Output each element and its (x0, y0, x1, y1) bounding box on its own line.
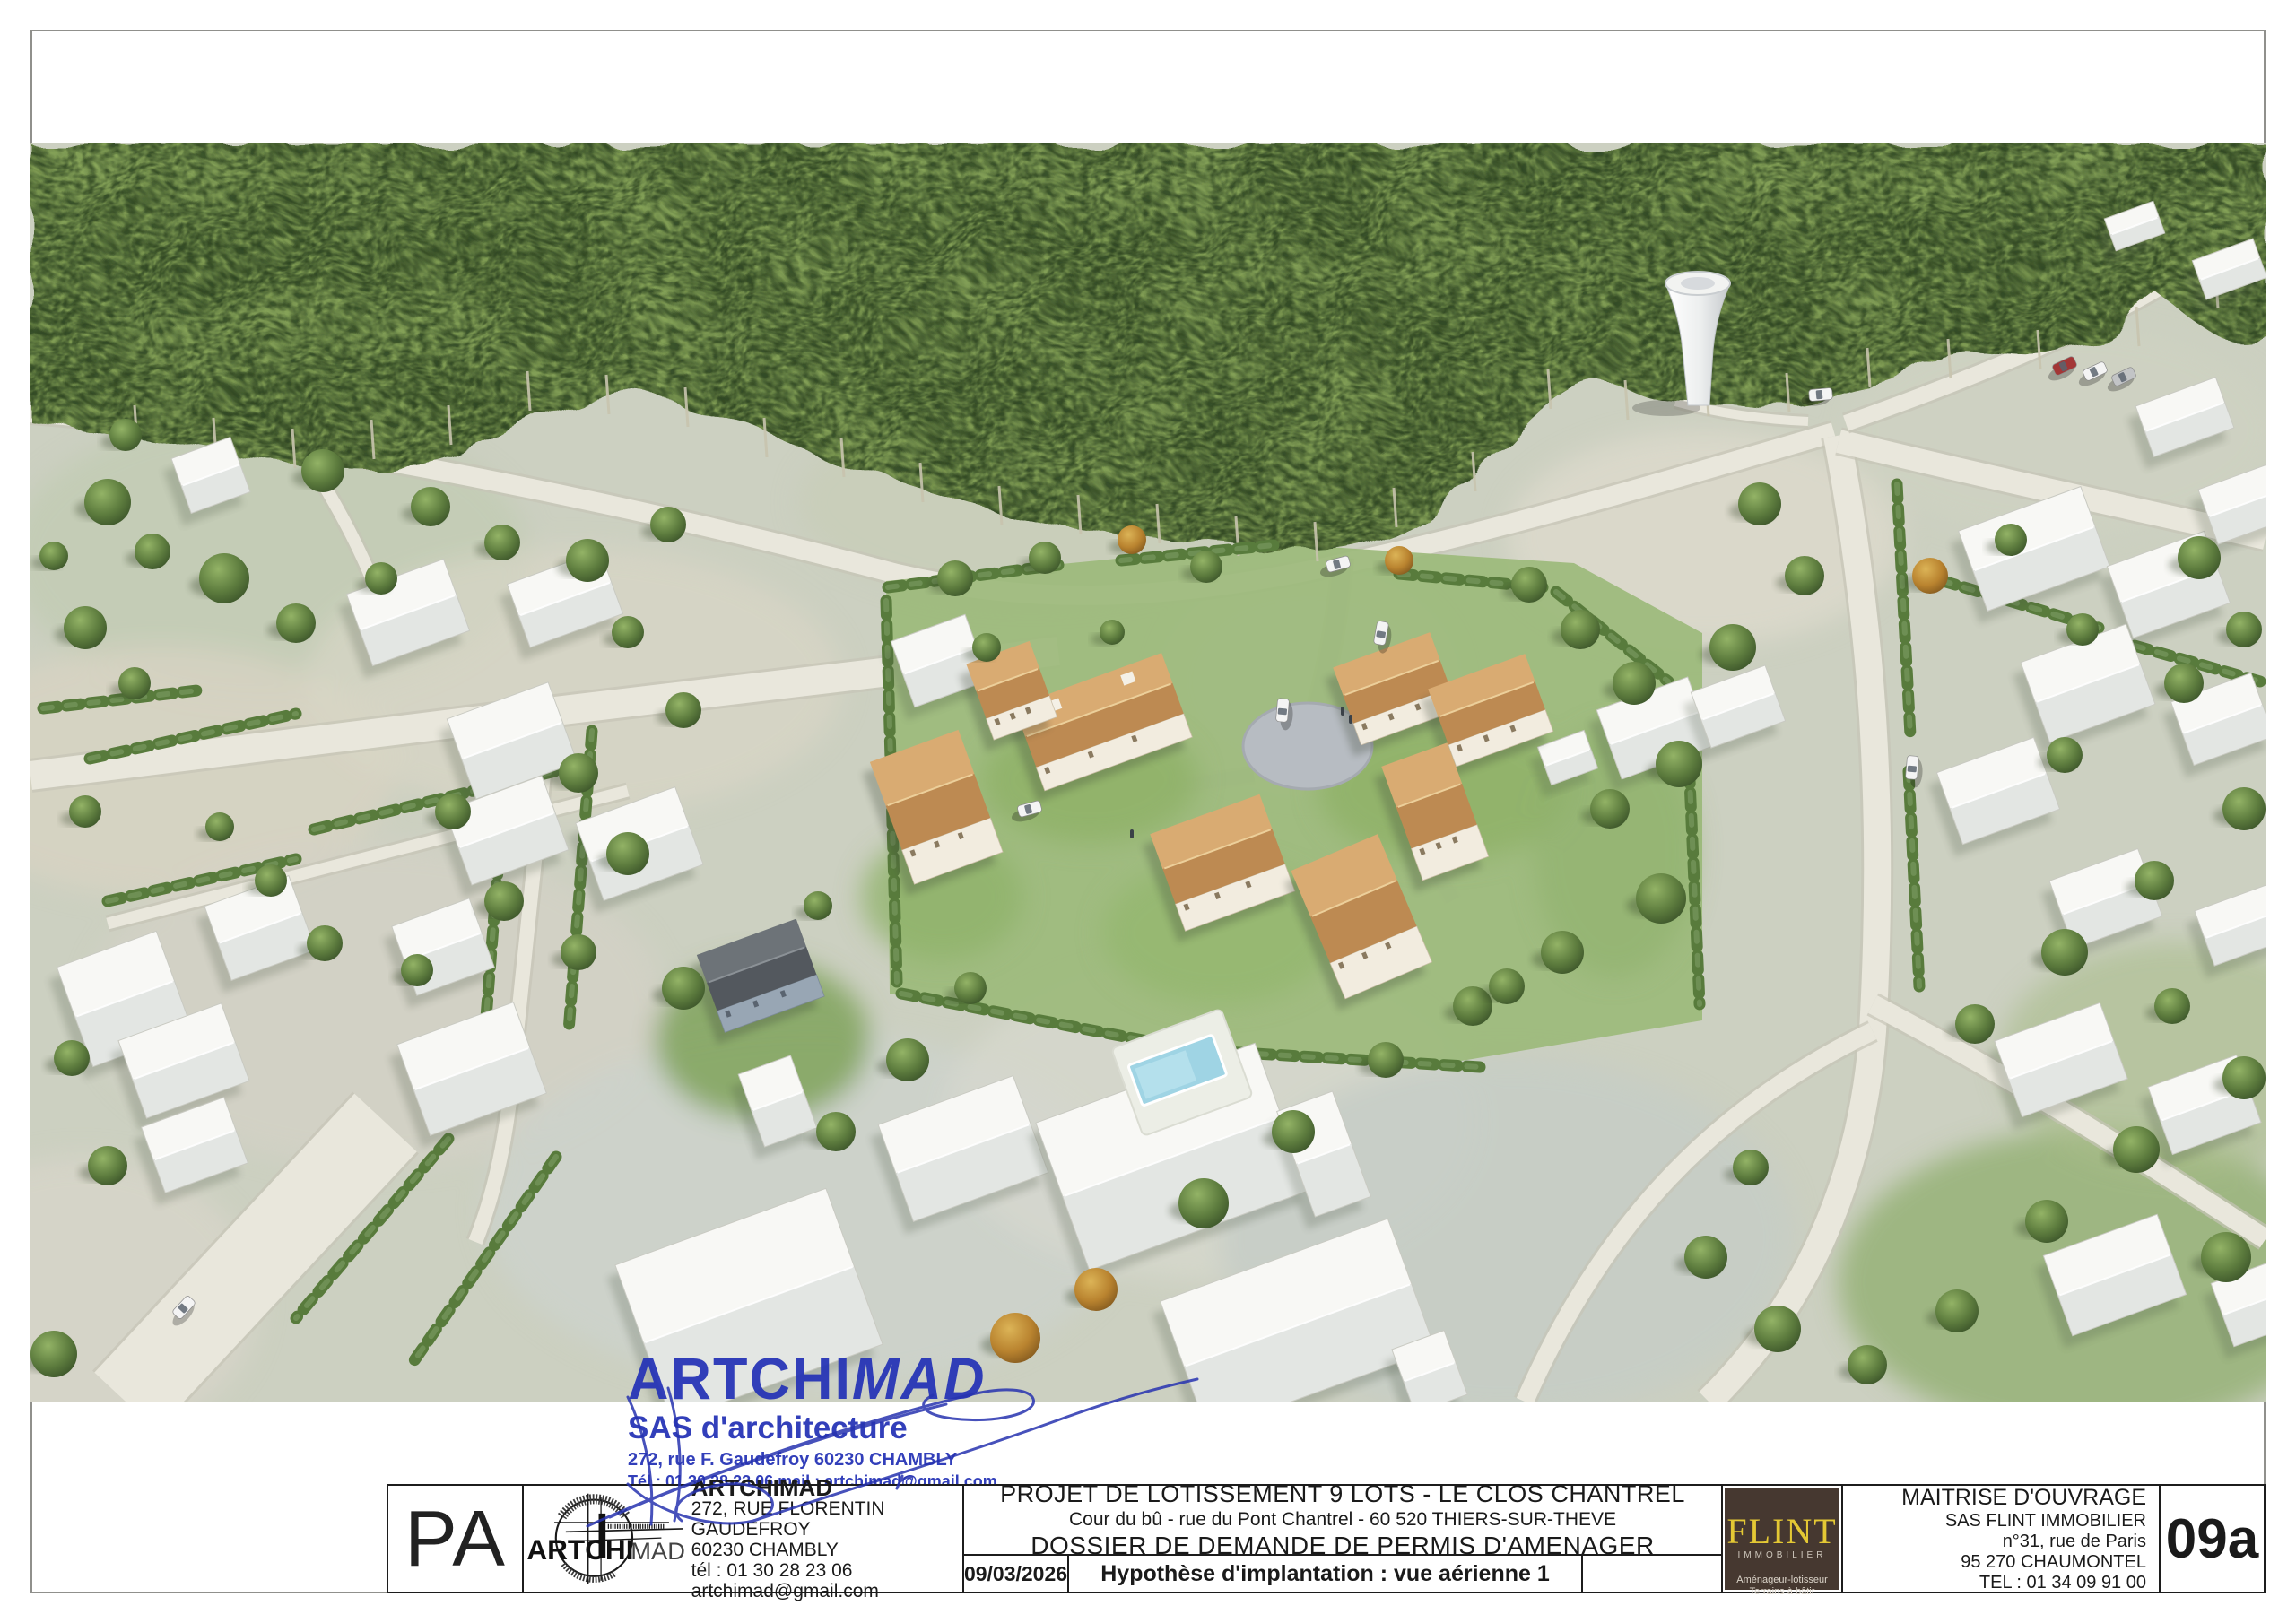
stamp-company-type: SAS d'architecture (628, 1412, 1130, 1445)
owner-phone: TEL : 01 34 09 91 00 (1979, 1573, 2146, 1593)
autumn-tree (1118, 525, 1146, 554)
flint-name: FLINT (1726, 1516, 1837, 1547)
tree (1511, 567, 1547, 603)
tree (1684, 1236, 1727, 1279)
autumn-tree (1074, 1268, 1118, 1311)
autumn-tree (1912, 558, 1948, 594)
project-address: Cour du bû - rue du Pont Chantrel - 60 5… (1069, 1509, 1616, 1531)
tree (1272, 1110, 1315, 1153)
tree (301, 449, 344, 492)
tree (1733, 1150, 1769, 1185)
tree (118, 667, 151, 699)
tree (1178, 1178, 1229, 1228)
tree (255, 864, 287, 897)
tree (1029, 542, 1061, 574)
flint-logo-cell: FLINT IMMOBILIER Aménageur-lotisseur Ter… (1721, 1486, 1841, 1592)
tree (2222, 787, 2266, 830)
tree (954, 972, 987, 1004)
tree (69, 795, 101, 828)
tree (30, 1331, 77, 1377)
project-cell: PROJET DE LOTISSEMENT 9 LOTS - LE CLOS C… (962, 1486, 1721, 1592)
tree (1613, 662, 1656, 705)
tree (816, 1112, 856, 1151)
artchimad-logo: ARTCHI MAD (524, 1486, 686, 1592)
svg-text:ARTCHI: ARTCHI (526, 1533, 633, 1566)
tree (2047, 737, 2083, 773)
tree (2113, 1126, 2160, 1173)
tree (665, 692, 701, 728)
tree (276, 603, 316, 643)
tree (1955, 1004, 1995, 1044)
architect-email: artchimad@gmail.com (691, 1581, 962, 1601)
tree (2025, 1200, 2068, 1243)
tree (1100, 620, 1125, 645)
tree (1368, 1042, 1404, 1078)
tree (1489, 968, 1525, 1004)
view-label: Hypothèse d'implantation : vue aérienne … (1069, 1556, 1583, 1592)
tree (39, 542, 68, 570)
empty-cell (1583, 1556, 1721, 1592)
tree (662, 967, 705, 1010)
tree (109, 419, 142, 451)
tree (2201, 1232, 2251, 1282)
flint-tagline1: Aménageur-lotisseur (1736, 1575, 1828, 1586)
aerial-render (30, 143, 2266, 1402)
title-block: PA ARTCHI MAD ARTCHIMAD 272, RUE FLORENT… (387, 1484, 2266, 1593)
owner-heading: MAITRISE D'OUVRAGE (1901, 1484, 2146, 1511)
tree (205, 812, 234, 841)
sheet-code: PA (388, 1486, 522, 1592)
tree (435, 794, 471, 829)
tree (972, 633, 1001, 662)
tree (886, 1038, 929, 1081)
tree (650, 507, 686, 542)
architect-phone: tél : 01 30 28 23 06 (691, 1560, 962, 1581)
tree (2178, 536, 2221, 579)
tree (1561, 610, 1600, 649)
tree (1709, 624, 1756, 671)
tree (2222, 1056, 2266, 1099)
tree (135, 534, 170, 569)
architect-name: ARTCHIMAD (691, 1478, 962, 1498)
tree (54, 1040, 90, 1076)
stamp-address: 272, rue F. Gaudefroy 60230 CHAMBLY (628, 1451, 1130, 1470)
tree (411, 487, 450, 526)
project-title: PROJET DE LOTISSEMENT 9 LOTS - LE CLOS C… (1000, 1480, 1685, 1508)
tree (1785, 556, 1824, 595)
tree (484, 881, 524, 921)
tree (1848, 1345, 1887, 1384)
tree (64, 606, 107, 649)
architect-address2: 60230 CHAMBLY (691, 1540, 962, 1560)
tree (559, 753, 598, 793)
architect-cell: ARTCHI MAD ARTCHIMAD 272, RUE FLORENTIN … (522, 1486, 962, 1592)
owner-name: SAS FLINT IMMOBILIER (1945, 1511, 2146, 1532)
owner-address2: 95 270 CHAUMONTEL (1961, 1552, 2146, 1573)
tree (1656, 741, 1702, 787)
tree (2226, 612, 2262, 647)
architect-stamp: ARTCHIMAD SAS d'architecture 272, rue F.… (628, 1350, 1130, 1490)
tree (2164, 664, 2204, 703)
tree (1541, 931, 1584, 974)
tree (1590, 789, 1630, 829)
owner-cell: MAITRISE D'OUVRAGE SAS FLINT IMMOBILIER … (1841, 1486, 2159, 1592)
tree (199, 553, 249, 603)
tree (1995, 524, 2027, 556)
tree (365, 562, 397, 595)
tree (1738, 482, 1781, 525)
architect-address1: 272, RUE FLORENTIN GAUDEFROY (691, 1498, 962, 1540)
tree (561, 934, 596, 970)
flint-logo: FLINT IMMOBILIER Aménageur-lotisseur Ter… (1725, 1488, 1839, 1590)
tree (484, 525, 520, 560)
sheet-date: 09/03/2026 (964, 1556, 1069, 1592)
tree (307, 925, 343, 961)
owner-address1: n°31, rue de Paris (2003, 1532, 2146, 1552)
tree (566, 539, 609, 582)
tree (401, 954, 433, 986)
svg-text:MAD: MAD (631, 1537, 685, 1565)
stamp-company-name: ARTCHIMAD (628, 1349, 1130, 1410)
flint-subtitle: IMMOBILIER (1738, 1550, 1827, 1560)
tree (606, 832, 649, 875)
tree (84, 479, 131, 525)
document-sheet: ARTCHIMAD SAS d'architecture 272, rue F.… (0, 0, 2296, 1623)
tree (804, 891, 832, 920)
tree (1190, 551, 1222, 583)
sheet-number: 09a (2159, 1486, 2264, 1592)
tree (1636, 873, 1686, 924)
tree (2066, 613, 2099, 646)
tree (1935, 1289, 1979, 1332)
tree (937, 560, 973, 596)
tree (1754, 1306, 1801, 1352)
tree (2135, 861, 2174, 900)
autumn-tree (1385, 546, 1413, 575)
tree (612, 616, 644, 648)
tree (2154, 988, 2190, 1024)
flint-tagline2: Terrains à bâtir (1736, 1586, 1828, 1598)
tree (2041, 929, 2088, 976)
tree (88, 1146, 127, 1185)
